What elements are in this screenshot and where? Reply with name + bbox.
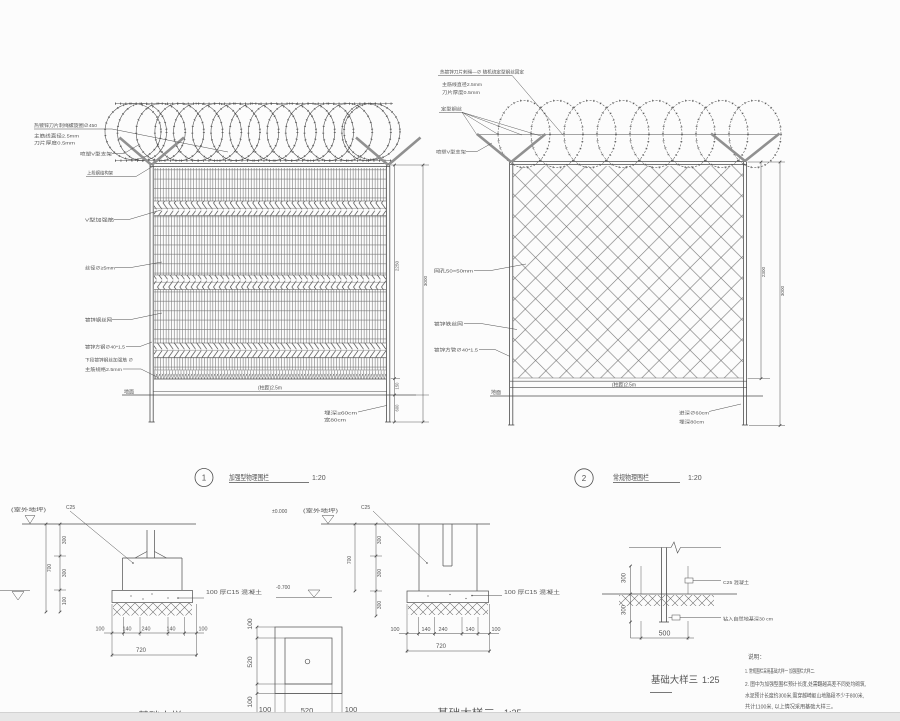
svg-text:刀片厚度0.5mm: 刀片厚度0.5mm	[442, 89, 480, 96]
svg-text:埋深≥60cm: 埋深≥60cm	[324, 410, 357, 417]
svg-text:500: 500	[659, 631, 671, 638]
svg-text:100 厚C15 混凝土: 100 厚C15 混凝土	[206, 588, 262, 596]
svg-text:300: 300	[377, 536, 383, 545]
svg-text:定型钢丝: 定型钢丝	[441, 106, 462, 113]
svg-text:1: 1	[202, 474, 207, 483]
svg-text:常规物理围栏: 常规物理围栏	[613, 473, 649, 482]
svg-text:2250: 2250	[395, 260, 400, 271]
svg-text:150: 150	[395, 382, 400, 390]
svg-text:300: 300	[377, 569, 383, 578]
svg-text:基础大样三: 基础大样三	[651, 674, 698, 686]
svg-text:(柱距)2.5m: (柱距)2.5m	[258, 385, 282, 392]
svg-text:喷塑V型支架: 喷塑V型支架	[80, 151, 112, 158]
svg-text:丝径∅≥5mm: 丝径∅≥5mm	[85, 265, 115, 272]
svg-text:100: 100	[62, 597, 68, 606]
svg-text:700: 700	[347, 556, 353, 565]
svg-text:2: 2	[582, 474, 587, 483]
svg-text:下段镀锌钢丝加强筋 ∅: 下段镀锌钢丝加强筋 ∅	[85, 357, 133, 364]
svg-text:100: 100	[247, 696, 254, 708]
svg-text:加强型物理围栏: 加强型物理围栏	[229, 473, 269, 482]
svg-text:1:25: 1:25	[702, 675, 720, 685]
svg-text:700: 700	[47, 564, 53, 573]
svg-text:地面: 地面	[124, 389, 134, 396]
svg-text:镀锌方管∅40*1.5: 镀锌方管∅40*1.5	[434, 347, 479, 354]
svg-text:140: 140	[422, 627, 431, 633]
svg-text:520: 520	[247, 656, 254, 668]
svg-text:宽80cm: 宽80cm	[324, 417, 346, 424]
svg-text:300: 300	[377, 601, 383, 610]
svg-text:镀锌方钢∅40*1.5: 镀锌方钢∅40*1.5	[85, 344, 125, 351]
svg-text:C25: C25	[66, 505, 75, 511]
svg-text:100: 100	[492, 627, 501, 633]
svg-text:-0.700: -0.700	[276, 585, 290, 591]
svg-text:140: 140	[123, 627, 132, 633]
svg-text:上段钢结构架: 上段钢结构架	[87, 170, 113, 177]
svg-text:水泥预计长度约300米,需穿越崎岖山地路段不少于800米,: 水泥预计长度约300米,需穿越崎岖山地路段不少于800米,	[745, 692, 864, 700]
svg-text:100: 100	[391, 627, 400, 633]
svg-text:100: 100	[247, 618, 254, 630]
svg-text:热镀锌刀片刺绳螺旋圈∅450: 热镀锌刀片刺绳螺旋圈∅450	[34, 122, 97, 129]
svg-text:600: 600	[395, 404, 400, 412]
svg-text:共计1100米, 以上情况采用基础大样三。: 共计1100米, 以上情况采用基础大样三。	[745, 703, 836, 711]
svg-text:300: 300	[622, 572, 628, 583]
svg-text:V型加强筋: V型加强筋	[85, 217, 114, 224]
svg-text:300: 300	[62, 569, 68, 578]
svg-text:300: 300	[622, 604, 628, 615]
svg-text:1:20: 1:20	[688, 475, 702, 482]
svg-text:±0.000: ±0.000	[272, 509, 287, 515]
svg-text:2300: 2300	[761, 266, 766, 277]
svg-text:主筋规格2.5mm: 主筋规格2.5mm	[85, 366, 122, 373]
svg-text:钻入自然地基深30 cm: 钻入自然地基深30 cm	[723, 616, 773, 623]
svg-text:埋深80cm: 埋深80cm	[679, 419, 704, 426]
svg-text:进深∅60cm: 进深∅60cm	[679, 410, 709, 417]
svg-text:3000: 3000	[780, 285, 785, 296]
svg-text:140: 140	[167, 627, 176, 633]
svg-text:网孔50×50mm: 网孔50×50mm	[434, 268, 473, 275]
svg-text:240: 240	[142, 627, 151, 633]
svg-text:C25: C25	[361, 505, 370, 511]
svg-text:100: 100	[96, 627, 105, 633]
svg-text:1. 常规围栏采用基础大样一 加强围栏大样二.: 1. 常规围栏采用基础大样一 加强围栏大样二.	[745, 667, 815, 675]
svg-text:说明：: 说明：	[748, 653, 765, 661]
svg-text:(室外地坪): (室外地坪)	[11, 506, 46, 514]
svg-text:3000: 3000	[423, 275, 428, 286]
svg-text:地面: 地面	[491, 389, 501, 396]
svg-text:热镀锌刀片刺绳—∅ 随机绕定型钢丝固定: 热镀锌刀片刺绳—∅ 随机绕定型钢丝固定	[440, 69, 524, 76]
svg-text:720: 720	[136, 648, 147, 654]
svg-text:(室外地坪): (室外地坪)	[303, 507, 338, 515]
svg-text:镀锌钢丝网: 镀锌钢丝网	[85, 317, 112, 324]
svg-text:主筋线直径2.5mm: 主筋线直径2.5mm	[34, 133, 79, 140]
svg-text:100 厚C15 混凝土: 100 厚C15 混凝土	[504, 588, 560, 596]
svg-text:镀锌铁丝网: 镀锌铁丝网	[434, 321, 463, 328]
svg-text:(柱距)2.5m: (柱距)2.5m	[612, 382, 636, 389]
svg-text:1:20: 1:20	[312, 475, 326, 482]
svg-text:140: 140	[466, 627, 475, 633]
svg-text:刀片厚度0.5mm: 刀片厚度0.5mm	[34, 140, 75, 147]
svg-text:2. 图中为加强型围栏预计长度,处需翻越高差不同处均砌筑,: 2. 图中为加强型围栏预计长度,处需翻越高差不同处均砌筑,	[745, 680, 866, 688]
svg-text:100: 100	[199, 627, 208, 633]
svg-text:C25 混凝土: C25 混凝土	[723, 579, 749, 586]
svg-text:喷塑V型支架: 喷塑V型支架	[436, 149, 466, 156]
svg-text:300: 300	[62, 536, 68, 545]
svg-text:240: 240	[439, 627, 448, 633]
svg-text:720: 720	[436, 644, 447, 650]
svg-text:主筋线直径2.5mm: 主筋线直径2.5mm	[442, 81, 482, 88]
